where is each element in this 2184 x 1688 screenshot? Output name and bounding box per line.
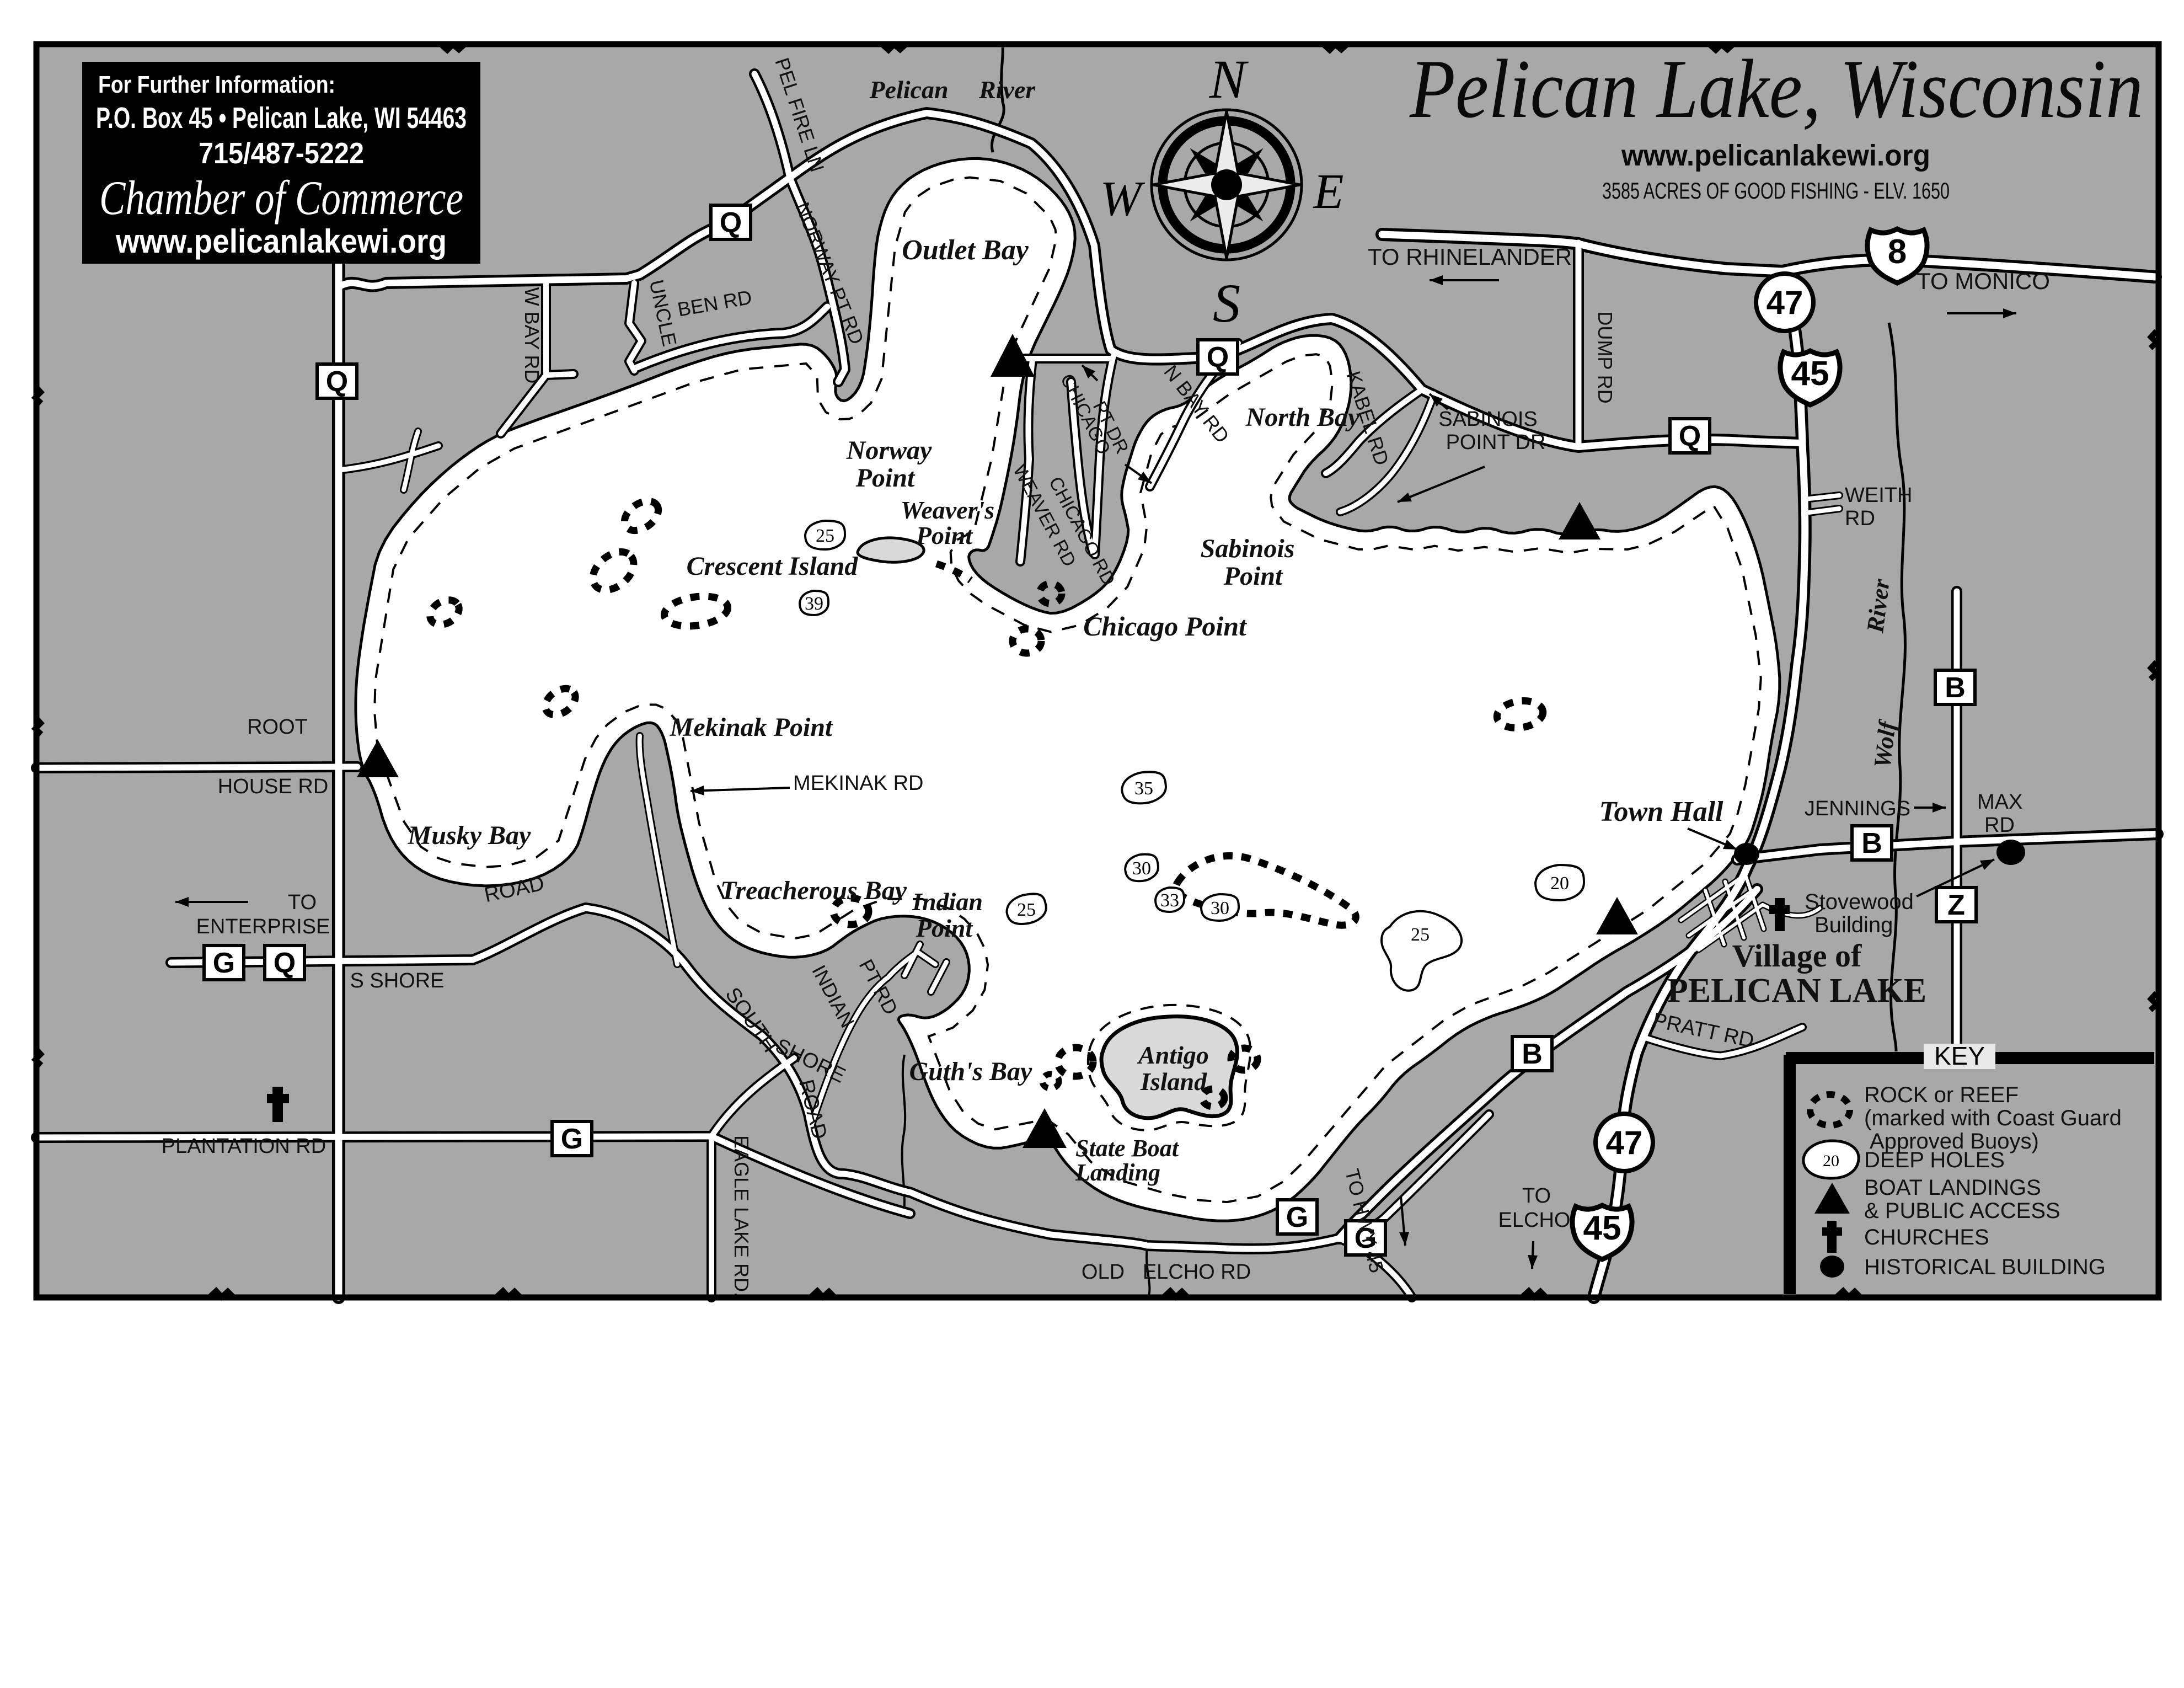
- svg-text:Crescent Island: Crescent Island: [687, 552, 859, 581]
- svg-text:(marked with Coast Guard: (marked with Coast Guard: [1864, 1106, 2122, 1130]
- svg-text:EAGLE LAKE RD.: EAGLE LAKE RD.: [730, 1135, 753, 1297]
- svg-text:Indian: Indian: [912, 888, 983, 916]
- svg-text:B: B: [1522, 1038, 1543, 1070]
- svg-text:Stovewood: Stovewood: [1805, 890, 1914, 914]
- svg-text:Treacherous Bay: Treacherous Bay: [720, 876, 907, 905]
- svg-text:ELCHO RD: ELCHO RD: [1143, 1260, 1251, 1284]
- svg-text:W: W: [1100, 172, 1145, 226]
- svg-text:Chamber of Commerce: Chamber of Commerce: [99, 172, 463, 225]
- svg-text:Musky Bay: Musky Bay: [408, 821, 531, 850]
- svg-text:OLD: OLD: [1082, 1260, 1125, 1284]
- svg-text:Weaver's: Weaver's: [901, 496, 994, 524]
- svg-text:715/487-5222: 715/487-5222: [199, 137, 364, 170]
- svg-text:B: B: [1861, 827, 1882, 859]
- svg-text:20: 20: [1550, 873, 1569, 894]
- svg-text:www.pelicanlakewi.org: www.pelicanlakewi.org: [115, 223, 447, 260]
- svg-text:MEKINAK RD: MEKINAK RD: [793, 772, 923, 795]
- svg-text:20: 20: [1823, 1152, 1839, 1170]
- svg-text:Sabinois: Sabinois: [1201, 534, 1295, 563]
- svg-text:ENTERPRISE: ENTERPRISE: [196, 915, 330, 938]
- svg-text:MAX: MAX: [1977, 790, 2022, 814]
- svg-text:State Boat: State Boat: [1075, 1135, 1180, 1162]
- svg-text:SABINOIS: SABINOIS: [1438, 408, 1538, 431]
- svg-text:33: 33: [1160, 890, 1179, 911]
- svg-text:& PUBLIC ACCESS: & PUBLIC ACCESS: [1864, 1199, 2060, 1223]
- svg-text:ELCHO: ELCHO: [1498, 1209, 1571, 1232]
- svg-text:For Further Information:: For Further Information:: [98, 71, 335, 98]
- svg-text:45: 45: [1583, 1209, 1621, 1247]
- svg-text:P.O. Box 45 • Pelican Lake, WI: P.O. Box 45 • Pelican Lake, WI 54463: [96, 102, 467, 135]
- svg-text:Antigo: Antigo: [1137, 1041, 1209, 1069]
- svg-text:W BAY RD: W BAY RD: [521, 287, 543, 384]
- svg-text:ROOT: ROOT: [247, 715, 308, 739]
- svg-text:TO RHINELANDER: TO RHINELANDER: [1368, 244, 1572, 270]
- svg-text:25: 25: [1017, 900, 1036, 920]
- svg-text:Island: Island: [1140, 1067, 1207, 1096]
- svg-text:Outlet Bay: Outlet Bay: [902, 234, 1029, 266]
- svg-text:Q: Q: [326, 366, 348, 398]
- svg-text:B: B: [1945, 672, 1966, 704]
- svg-text:39: 39: [805, 594, 823, 614]
- svg-text:RD: RD: [1984, 814, 2015, 837]
- svg-text:Q: Q: [1207, 341, 1229, 373]
- svg-text:N: N: [1209, 49, 1249, 110]
- svg-text:TO: TO: [1522, 1184, 1551, 1208]
- svg-text:G: G: [1286, 1201, 1308, 1233]
- svg-text:3585 ACRES OF GOOD FISHING - E: 3585 ACRES OF GOOD FISHING - ELV. 1650: [1602, 178, 1950, 204]
- svg-text:Guth's Bay: Guth's Bay: [909, 1057, 1032, 1086]
- svg-text:HISTORICAL BUILDING: HISTORICAL BUILDING: [1864, 1255, 2106, 1279]
- svg-text:25: 25: [1411, 925, 1430, 945]
- svg-text:Building: Building: [1814, 913, 1893, 937]
- svg-text:47: 47: [1767, 284, 1803, 321]
- svg-text:Norway: Norway: [846, 436, 932, 465]
- svg-text:Point: Point: [916, 521, 973, 549]
- svg-text:Pelican: Pelican: [869, 76, 948, 104]
- svg-text:45: 45: [1791, 355, 1829, 393]
- svg-text:Q: Q: [720, 207, 742, 239]
- svg-text:CHURCHES: CHURCHES: [1864, 1225, 1989, 1249]
- svg-text:POINT DR: POINT DR: [1446, 431, 1546, 454]
- svg-text:G: G: [561, 1123, 583, 1155]
- svg-text:Pelican Lake, Wisconsin: Pelican Lake, Wisconsin: [1409, 42, 2143, 135]
- svg-text:35: 35: [1134, 778, 1153, 799]
- svg-text:Z: Z: [1947, 889, 1965, 921]
- svg-text:Q: Q: [274, 947, 296, 979]
- svg-text:PLANTATION RD: PLANTATION RD: [162, 1135, 326, 1158]
- svg-text:BOAT LANDINGS: BOAT LANDINGS: [1864, 1176, 2041, 1200]
- svg-text:E: E: [1313, 164, 1344, 219]
- svg-text:Point: Point: [855, 463, 916, 493]
- svg-text:KEY: KEY: [1934, 1041, 1985, 1070]
- svg-text:Mekinak Point: Mekinak Point: [670, 713, 833, 742]
- svg-text:Village of: Village of: [1732, 938, 1862, 974]
- svg-text:www.pelicanlakewi.org: www.pelicanlakewi.org: [1621, 139, 1930, 172]
- svg-text:Q: Q: [1679, 420, 1701, 452]
- svg-text:North Bay: North Bay: [1245, 403, 1360, 432]
- svg-text:RD: RD: [1845, 507, 1875, 530]
- svg-text:TO: TO: [288, 891, 317, 914]
- svg-text:DEEP HOLES: DEEP HOLES: [1864, 1148, 2005, 1172]
- svg-text:TO MONICO: TO MONICO: [1917, 268, 2050, 294]
- svg-text:Point: Point: [1223, 562, 1283, 591]
- svg-text:30: 30: [1211, 898, 1229, 918]
- svg-text:Chicago Point: Chicago Point: [1083, 611, 1248, 642]
- svg-text:WEITH: WEITH: [1845, 484, 1912, 507]
- svg-text:ROCK or REEF: ROCK or REEF: [1864, 1083, 2019, 1107]
- svg-text:River: River: [978, 76, 1036, 104]
- svg-text:S SHORE: S SHORE: [350, 969, 444, 992]
- svg-text:S: S: [1213, 273, 1240, 334]
- svg-text:8: 8: [1888, 233, 1907, 271]
- svg-text:DUMP RD: DUMP RD: [1594, 311, 1616, 403]
- svg-text:25: 25: [816, 526, 834, 546]
- svg-text:Landing: Landing: [1075, 1159, 1160, 1186]
- svg-text:47: 47: [1606, 1124, 1643, 1161]
- svg-text:G: G: [213, 947, 235, 979]
- svg-text:HOUSE RD: HOUSE RD: [218, 775, 329, 798]
- svg-text:Point: Point: [916, 914, 973, 942]
- svg-text:JENNINGS: JENNINGS: [1805, 797, 1910, 820]
- svg-text:30: 30: [1132, 858, 1151, 879]
- svg-text:Town Hall: Town Hall: [1599, 796, 1723, 827]
- svg-text:PELICAN LAKE: PELICAN LAKE: [1667, 972, 1926, 1009]
